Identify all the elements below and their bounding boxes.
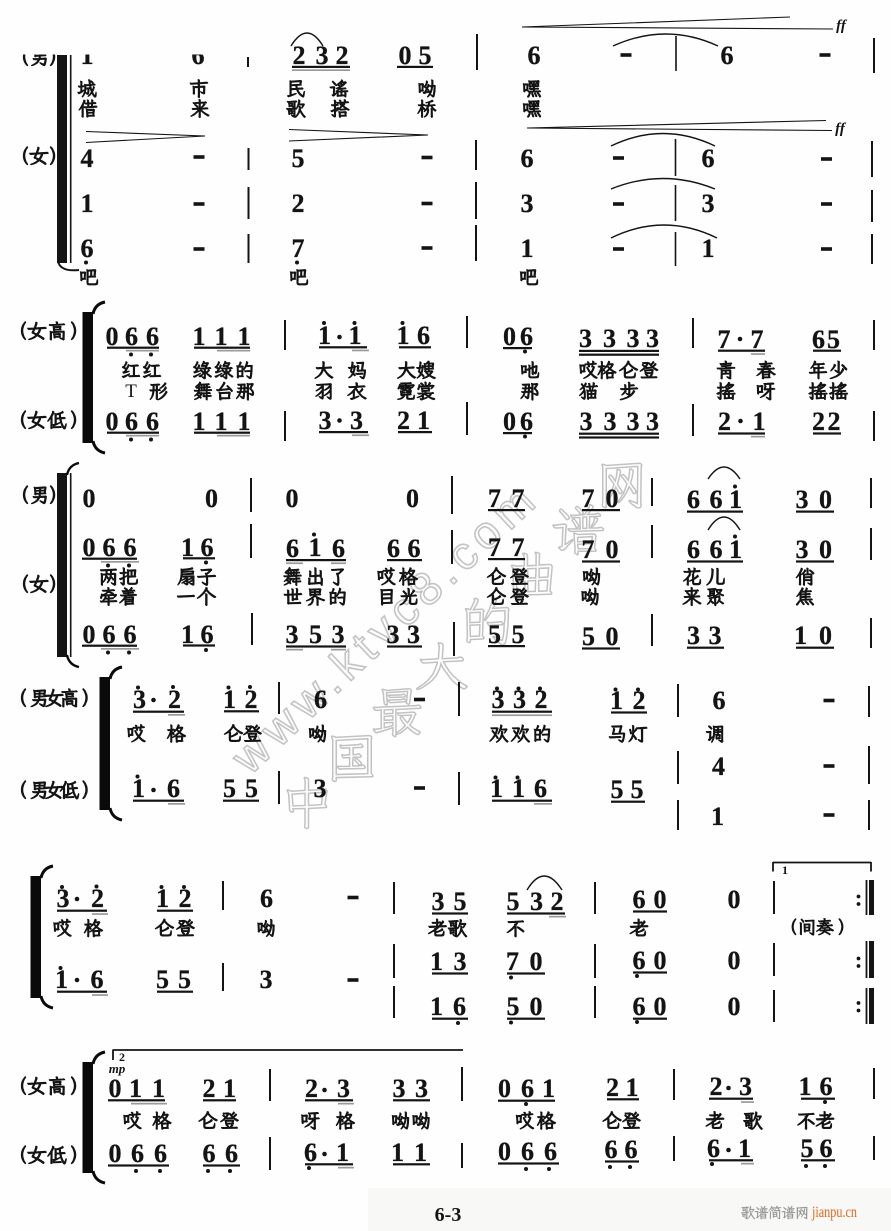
svg-text:5: 5 [801, 1134, 814, 1163]
svg-text:1: 1 [223, 685, 236, 714]
svg-text:2: 2 [606, 1073, 619, 1102]
svg-text:1: 1 [309, 533, 322, 562]
svg-text:0: 0 [606, 535, 619, 564]
svg-text:0: 0 [654, 946, 667, 975]
svg-text:6: 6 [417, 321, 430, 350]
svg-text:3: 3 [796, 485, 809, 514]
svg-text:6: 6 [687, 485, 700, 514]
svg-text:1: 1 [738, 1134, 751, 1163]
svg-text:6: 6 [521, 1074, 534, 1103]
svg-text:1: 1 [223, 1074, 236, 1103]
svg-text:6: 6 [131, 1139, 144, 1168]
svg-text:1: 1 [753, 407, 766, 436]
svg-text:0: 0 [819, 535, 832, 564]
svg-text:1: 1 [521, 234, 534, 263]
svg-text:3: 3 [579, 324, 592, 353]
svg-text:3: 3 [709, 621, 722, 650]
svg-text:7: 7 [488, 484, 501, 513]
svg-text:6: 6 [314, 685, 327, 714]
svg-text:5: 5 [512, 620, 525, 649]
svg-text:1: 1 [391, 1138, 404, 1167]
svg-text:6: 6 [521, 144, 534, 173]
svg-text:6: 6 [520, 322, 533, 351]
svg-text:7: 7 [512, 484, 525, 513]
svg-text:2: 2 [168, 685, 181, 714]
svg-text:7: 7 [582, 535, 595, 564]
svg-text:1: 1 [129, 1074, 142, 1103]
svg-text:1: 1 [626, 1073, 639, 1102]
svg-text:3: 3 [580, 407, 593, 436]
svg-text:1: 1 [729, 485, 742, 514]
svg-text:2: 2 [812, 407, 825, 436]
svg-text:6: 6 [260, 884, 273, 913]
svg-text:6: 6 [625, 1135, 638, 1164]
svg-text:0: 0 [205, 484, 218, 513]
svg-text:6: 6 [203, 1139, 216, 1168]
svg-text:0: 0 [406, 484, 419, 513]
svg-text:3: 3 [133, 685, 146, 714]
svg-text:5: 5 [292, 144, 305, 173]
svg-text:1: 1 [799, 1072, 812, 1101]
svg-text:0: 0 [83, 484, 96, 513]
svg-text:0: 0 [654, 992, 667, 1021]
svg-text:6: 6 [710, 535, 723, 564]
svg-text:0: 0 [819, 485, 832, 514]
svg-text:3: 3 [407, 620, 420, 649]
svg-text:6: 6 [534, 774, 547, 803]
svg-text:0: 0 [606, 484, 619, 513]
svg-text:5: 5 [156, 965, 169, 994]
svg-text:7: 7 [488, 533, 501, 562]
svg-text:1: 1 [782, 863, 788, 877]
svg-text:3: 3 [530, 887, 543, 916]
svg-text:6: 6 [304, 1138, 317, 1167]
svg-text:6: 6 [702, 144, 715, 173]
svg-text:0: 0 [530, 992, 543, 1021]
svg-text:7: 7 [512, 533, 525, 562]
svg-text:5: 5 [631, 775, 644, 804]
svg-text:3: 3 [521, 189, 534, 218]
svg-text:5: 5 [245, 774, 258, 803]
svg-text:3: 3 [702, 189, 715, 218]
svg-text:1: 1 [81, 189, 94, 218]
svg-text:3: 3 [796, 535, 809, 564]
svg-text:0: 0 [286, 484, 299, 513]
svg-text:3: 3 [286, 620, 299, 649]
svg-text:3: 3 [350, 406, 363, 435]
svg-text:6: 6 [633, 946, 646, 975]
svg-text:6: 6 [225, 1139, 238, 1168]
svg-text:0: 0 [530, 947, 543, 976]
svg-text:3: 3 [319, 406, 332, 435]
svg-text:3: 3 [332, 620, 345, 649]
svg-text:1: 1 [794, 621, 807, 650]
svg-text:1: 1 [349, 321, 362, 350]
svg-text:2: 2 [710, 1072, 723, 1101]
svg-text:3: 3 [646, 407, 659, 436]
svg-text:5: 5 [178, 965, 191, 994]
svg-text:1: 1 [430, 992, 443, 1021]
svg-text:2: 2 [245, 685, 258, 714]
svg-text:5: 5 [309, 620, 322, 649]
svg-text:7: 7 [506, 947, 519, 976]
svg-text:0: 0 [728, 992, 741, 1021]
svg-text:1: 1 [414, 1138, 427, 1167]
svg-text:T: T [125, 381, 137, 402]
svg-text:0: 0 [109, 1139, 122, 1168]
svg-text:5: 5 [454, 887, 467, 916]
svg-text:6: 6 [633, 885, 646, 914]
svg-text:6: 6 [713, 686, 726, 715]
svg-text:3: 3 [739, 1072, 752, 1101]
svg-text:6: 6 [81, 234, 94, 263]
svg-text:5: 5 [582, 622, 595, 651]
svg-text:6: 6 [721, 41, 734, 70]
svg-text:2: 2 [292, 189, 305, 218]
svg-text:0: 0 [109, 1074, 122, 1103]
svg-text:6: 6 [820, 1134, 833, 1163]
svg-text:0: 0 [399, 41, 412, 70]
svg-text:6: 6 [91, 965, 104, 994]
svg-text:2: 2 [305, 1074, 318, 1103]
svg-text:0: 0 [503, 407, 516, 436]
svg-text:6: 6 [544, 1137, 557, 1166]
svg-text:5: 5 [611, 775, 624, 804]
svg-text:6-3: 6-3 [435, 1204, 462, 1226]
svg-text:2: 2 [828, 407, 841, 436]
svg-text:0: 0 [728, 946, 741, 975]
svg-text:1: 1 [711, 802, 724, 831]
svg-text:5: 5 [507, 887, 520, 916]
svg-text:1: 1 [417, 406, 430, 435]
svg-text:6: 6 [286, 534, 299, 563]
svg-text:5: 5 [419, 41, 432, 70]
svg-text:2: 2 [293, 41, 306, 70]
svg-text:6: 6 [453, 992, 466, 1021]
svg-text:0: 0 [498, 1137, 511, 1166]
svg-text:6: 6 [408, 534, 421, 563]
svg-text:1: 1 [729, 535, 742, 564]
svg-text:0: 0 [498, 1074, 511, 1103]
svg-text:0: 0 [654, 885, 667, 914]
svg-text:6: 6 [707, 1134, 720, 1163]
svg-text:6: 6 [332, 534, 345, 563]
svg-text:3: 3 [627, 324, 640, 353]
svg-text:3: 3 [260, 965, 273, 994]
svg-text:3: 3 [646, 324, 659, 353]
svg-text:7: 7 [582, 484, 595, 513]
svg-text:1: 1 [702, 234, 715, 263]
svg-text:3: 3 [337, 1074, 350, 1103]
svg-text:3: 3 [316, 41, 329, 70]
svg-text:1: 1 [318, 321, 331, 350]
svg-text:3: 3 [415, 1074, 428, 1103]
svg-text:jianpu.cn: jianpu.cn [811, 1204, 857, 1221]
svg-text:3: 3 [687, 621, 700, 650]
svg-text:2: 2 [397, 406, 410, 435]
svg-text:6: 6 [633, 992, 646, 1021]
svg-text:6: 6 [528, 41, 541, 70]
svg-text:1: 1 [152, 1074, 165, 1103]
svg-text:6: 6 [167, 774, 180, 803]
svg-text:0: 0 [728, 885, 741, 914]
svg-text:3: 3 [604, 407, 617, 436]
svg-text:5: 5 [507, 992, 520, 1021]
svg-text:0: 0 [606, 622, 619, 651]
svg-text:3: 3 [627, 407, 640, 436]
svg-text:6: 6 [520, 407, 533, 436]
svg-text:3: 3 [393, 1074, 406, 1103]
svg-text:6: 6 [521, 1137, 534, 1166]
svg-text:2: 2 [718, 407, 731, 436]
svg-text:3: 3 [387, 620, 400, 649]
svg-text:6: 6 [710, 485, 723, 514]
svg-text:6: 6 [605, 1135, 618, 1164]
svg-text:1: 1 [430, 947, 443, 976]
svg-text:3: 3 [432, 887, 445, 916]
svg-text:6: 6 [387, 534, 400, 563]
svg-text:2: 2 [551, 887, 564, 916]
svg-text:4: 4 [81, 144, 94, 173]
svg-text:7: 7 [292, 234, 305, 263]
svg-text:6: 6 [687, 535, 700, 564]
svg-text:0: 0 [503, 322, 516, 351]
svg-text:5: 5 [223, 774, 236, 803]
svg-text:5: 5 [488, 620, 501, 649]
svg-text:3: 3 [454, 947, 467, 976]
svg-text:2: 2 [91, 884, 104, 913]
svg-text:6: 6 [154, 1139, 167, 1168]
svg-text:1: 1 [397, 321, 410, 350]
svg-text:1: 1 [132, 774, 145, 803]
svg-text:2: 2 [203, 1074, 216, 1103]
svg-text:2: 2 [336, 41, 349, 70]
svg-text:4: 4 [712, 752, 725, 781]
svg-text:3: 3 [314, 774, 327, 803]
svg-text:1: 1 [336, 1138, 349, 1167]
svg-text:6: 6 [820, 1072, 833, 1101]
svg-text:3: 3 [603, 324, 616, 353]
svg-text:1: 1 [542, 1074, 555, 1103]
svg-text:0: 0 [819, 621, 832, 650]
